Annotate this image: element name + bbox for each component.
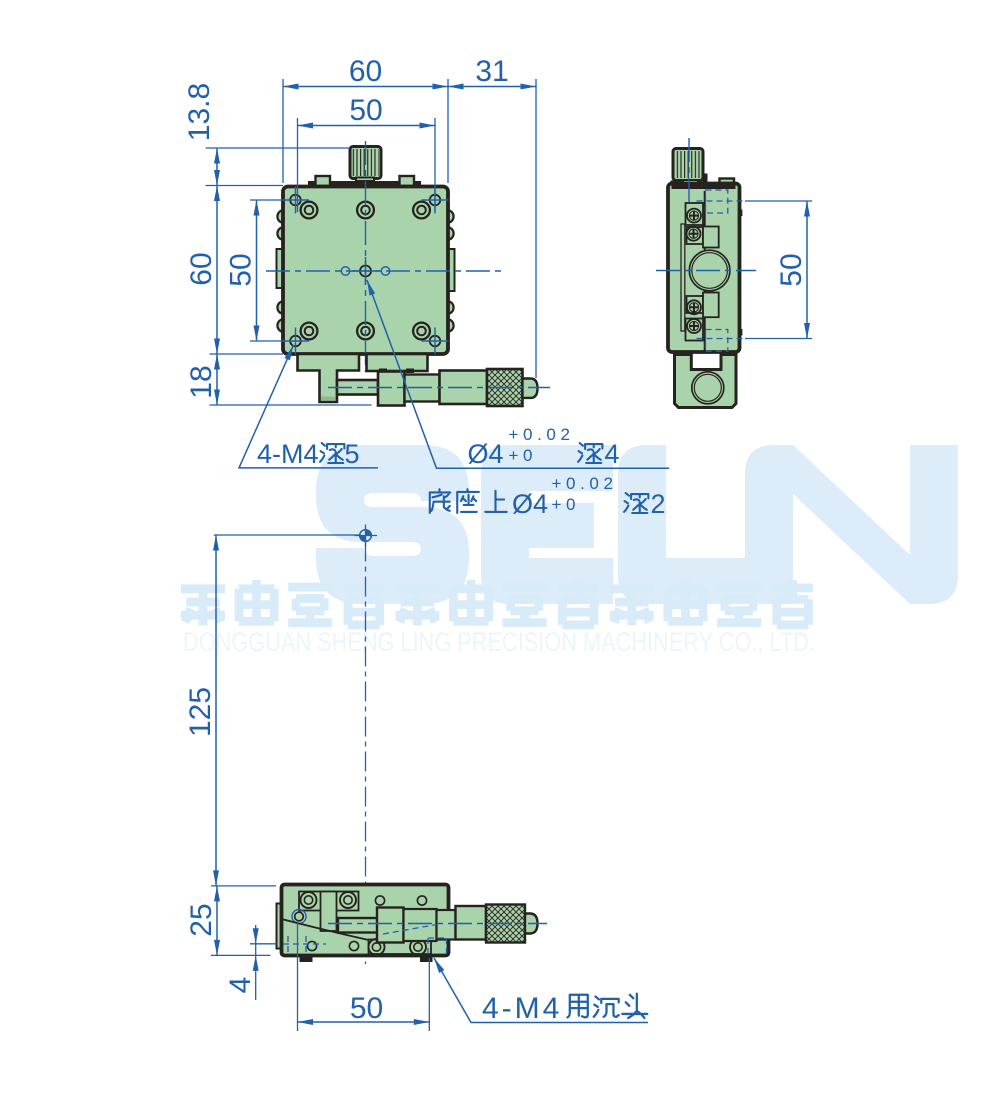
svg-text:13.8: 13.8: [183, 83, 216, 141]
svg-text:4: 4: [224, 977, 257, 994]
svg-text:60: 60: [185, 252, 218, 285]
svg-text:+0: +0: [509, 446, 538, 465]
svg-text:4-M4: 4-M4: [482, 992, 562, 1025]
svg-text:18: 18: [185, 365, 218, 398]
svg-text:+0.02: +0.02: [552, 474, 618, 493]
svg-text:60: 60: [349, 55, 382, 88]
svg-text:125: 125: [184, 687, 217, 737]
svg-text:50: 50: [349, 94, 382, 127]
svg-text:50: 50: [775, 253, 808, 286]
svg-text:4-M4: 4-M4: [257, 439, 319, 469]
svg-text:Ø4: Ø4: [512, 489, 548, 519]
svg-text:+0: +0: [552, 495, 581, 514]
svg-text:+0.02: +0.02: [509, 425, 575, 444]
svg-text:2: 2: [651, 489, 666, 519]
svg-text:25: 25: [185, 903, 218, 936]
svg-text:DONGGUAN SHENG LING PRECISION: DONGGUAN SHENG LING PRECISION MACHINERY …: [183, 627, 815, 657]
svg-text:50: 50: [350, 992, 383, 1025]
svg-text:31: 31: [475, 55, 508, 88]
svg-text:4: 4: [605, 439, 620, 469]
svg-text:50: 50: [225, 253, 258, 286]
svg-text:5: 5: [345, 439, 360, 469]
svg-text:Ø4: Ø4: [468, 439, 504, 469]
